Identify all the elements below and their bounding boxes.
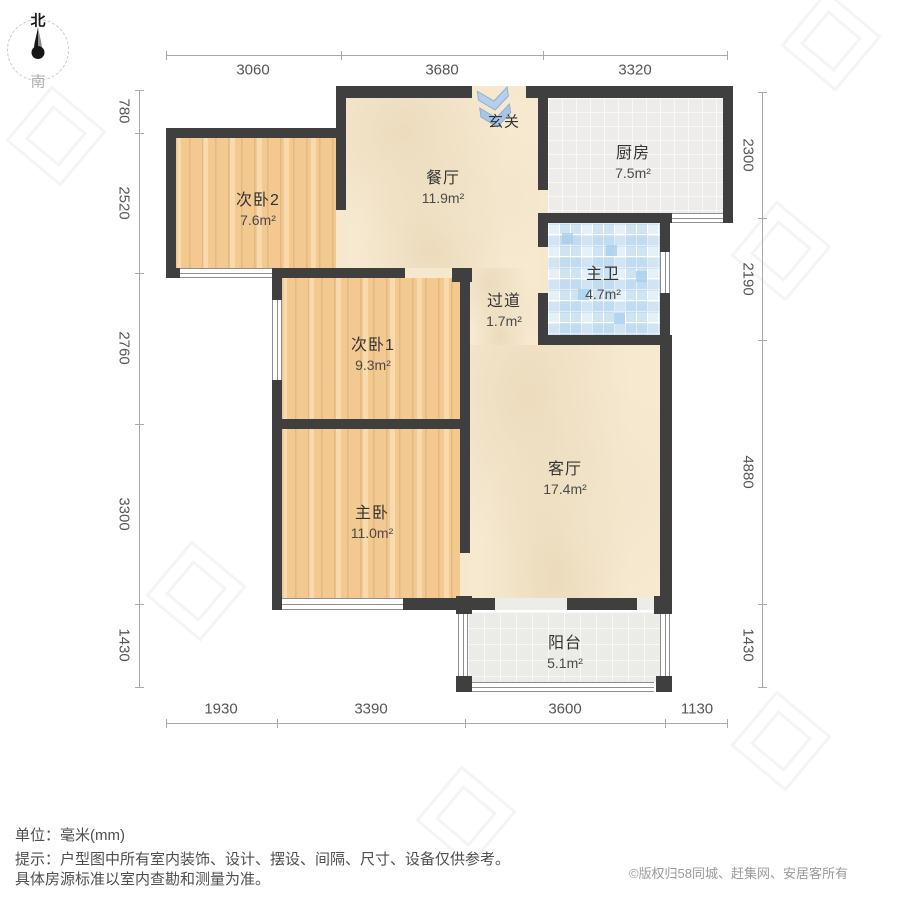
balcony-door-opening bbox=[495, 598, 567, 610]
dim-bottom-1: 1930 bbox=[204, 701, 237, 718]
room-area: 11.9m² bbox=[422, 190, 465, 206]
room-name: 阳台 bbox=[547, 629, 583, 653]
wall bbox=[538, 213, 672, 223]
watermark bbox=[730, 690, 831, 791]
room-area: 7.6m² bbox=[236, 212, 280, 228]
tip-line-2: 具体房源标准以室内查勘和测量为准。 bbox=[15, 868, 270, 889]
dim-left-1: 780 bbox=[116, 98, 133, 123]
room-name: 客厅 bbox=[543, 455, 587, 479]
wall bbox=[336, 86, 472, 98]
room-name: 过道 bbox=[486, 287, 522, 311]
room-area: 1.7m² bbox=[486, 313, 522, 329]
wall bbox=[472, 598, 495, 610]
dim-top-2: 3680 bbox=[425, 62, 458, 79]
kitchen-window bbox=[672, 213, 723, 223]
dim-left-4: 3300 bbox=[116, 497, 133, 530]
wall-post bbox=[456, 676, 472, 692]
room-name: 次卧2 bbox=[236, 186, 280, 210]
room-area: 7.5m² bbox=[615, 165, 651, 181]
balcony-window-left bbox=[458, 614, 468, 676]
dim-right-4: 1430 bbox=[740, 628, 757, 661]
room-label-balcony: 阳台 5.1m² bbox=[547, 629, 583, 671]
master-window bbox=[282, 598, 403, 610]
compass-south-label: 南 bbox=[30, 71, 45, 92]
balcony-window-right bbox=[660, 614, 670, 676]
wall-post bbox=[656, 676, 672, 692]
bedroom1-door-opening bbox=[405, 268, 452, 278]
dim-left-3: 2760 bbox=[116, 331, 133, 364]
wall-post bbox=[456, 596, 472, 614]
dim-bottom-2: 3390 bbox=[354, 701, 387, 718]
room-area: 9.3m² bbox=[351, 357, 395, 373]
watermark bbox=[5, 85, 106, 186]
dimension-line-top bbox=[166, 55, 727, 56]
wall bbox=[723, 98, 733, 223]
dim-bottom-3: 3600 bbox=[548, 701, 581, 718]
unit-note: 单位：毫米(mm) bbox=[15, 824, 125, 845]
room-name: 厨房 bbox=[615, 139, 651, 163]
dimension-line-right bbox=[762, 92, 763, 687]
wall bbox=[166, 128, 336, 138]
room-label-bath: 主卫 4.7m² bbox=[585, 260, 621, 302]
dimension-line-left bbox=[139, 90, 140, 687]
room-label-kitchen: 厨房 7.5m² bbox=[615, 139, 651, 181]
dim-bottom-4: 1130 bbox=[681, 701, 713, 718]
bath-window bbox=[660, 252, 670, 293]
tip-line-1: 提示：户型图中所有室内装饰、设计、摆设、间隔、尺寸、设备仅供参考。 bbox=[15, 848, 510, 869]
bedroom1-window bbox=[272, 300, 282, 380]
wall bbox=[538, 335, 672, 345]
dimension-line-bottom bbox=[166, 723, 728, 724]
copyright-text: ©版权归58同城、赶集网、安居客所有 bbox=[629, 863, 848, 882]
wall bbox=[538, 98, 548, 190]
watermark bbox=[780, 0, 881, 92]
bedroom2-door-opening bbox=[336, 210, 346, 268]
room-label-entry: 玄关 bbox=[488, 111, 520, 132]
wall bbox=[460, 268, 470, 553]
wall bbox=[660, 293, 670, 335]
room-name: 主卧 bbox=[351, 499, 394, 523]
room-area: 11.0m² bbox=[351, 525, 394, 541]
master-door-opening bbox=[460, 553, 470, 598]
dim-right-1: 2300 bbox=[740, 138, 757, 171]
bedroom2-window bbox=[180, 268, 272, 278]
dim-left-5: 1430 bbox=[116, 628, 133, 661]
wall bbox=[166, 268, 180, 278]
room-label-master: 主卧 11.0m² bbox=[351, 499, 394, 541]
balcony-side-opening bbox=[637, 598, 654, 610]
compass-needle-icon bbox=[30, 27, 46, 61]
bath-door-opening bbox=[538, 247, 548, 293]
room-area: 4.7m² bbox=[585, 286, 621, 302]
wall bbox=[166, 128, 176, 278]
room-name: 玄关 bbox=[488, 111, 520, 132]
dim-top-1: 3060 bbox=[236, 62, 269, 79]
wall bbox=[567, 598, 637, 610]
room-label-bedroom1: 次卧1 9.3m² bbox=[351, 331, 395, 373]
room-label-living: 客厅 17.4m² bbox=[543, 455, 587, 497]
wall bbox=[660, 345, 672, 612]
wall bbox=[723, 213, 733, 223]
wall-post bbox=[654, 596, 672, 614]
room-label-bedroom2: 次卧2 7.6m² bbox=[236, 186, 280, 228]
room-name: 餐厅 bbox=[422, 164, 465, 188]
dim-right-2: 2190 bbox=[740, 262, 757, 295]
room-area: 5.1m² bbox=[547, 655, 583, 671]
room-name: 主卫 bbox=[585, 260, 621, 284]
wall bbox=[272, 268, 405, 278]
dim-right-3: 4880 bbox=[740, 455, 757, 488]
watermark bbox=[145, 540, 246, 641]
wall bbox=[336, 86, 346, 210]
room-label-dining: 餐厅 11.9m² bbox=[422, 164, 465, 206]
room-label-corridor: 过道 1.7m² bbox=[486, 287, 522, 329]
floorplan-page: 北 南 bbox=[0, 0, 900, 900]
room-name: 次卧1 bbox=[351, 331, 395, 355]
dim-top-3: 3320 bbox=[618, 62, 651, 79]
wall bbox=[272, 419, 470, 429]
wall bbox=[660, 216, 670, 252]
balcony-window-bottom bbox=[472, 682, 654, 692]
wall bbox=[526, 86, 733, 98]
wall bbox=[403, 598, 460, 610]
room-area: 17.4m² bbox=[543, 481, 587, 497]
dim-left-2: 2520 bbox=[116, 186, 133, 219]
